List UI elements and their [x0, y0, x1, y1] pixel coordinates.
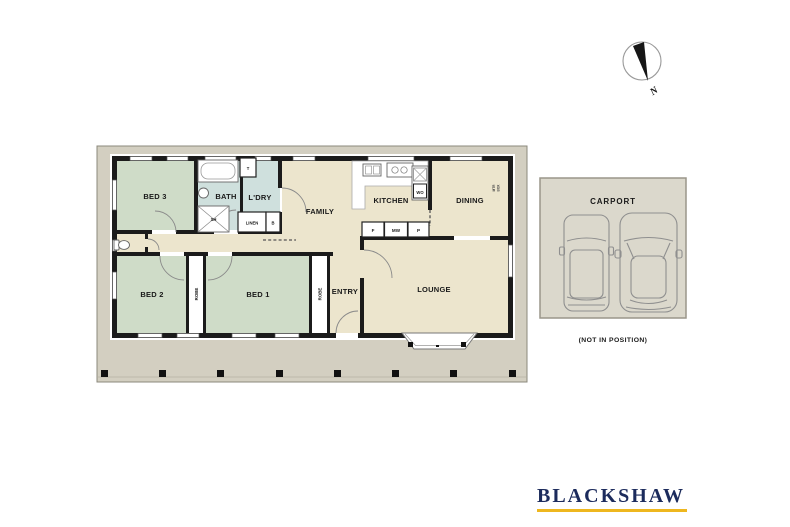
pantry-label: P [417, 228, 420, 233]
bed1-label: BED 1 [246, 290, 269, 299]
meter-box-label-2: BOX [497, 184, 501, 192]
bed3-label: BED 3 [143, 192, 166, 201]
bathtub-icon [198, 160, 238, 182]
wall-oven-label: WO [416, 190, 424, 195]
north-label: N [647, 84, 661, 98]
bed1-robe-label: ROBE [318, 288, 323, 301]
toilet-label: T [247, 166, 250, 171]
basin-icon [199, 188, 209, 198]
entry-label: ENTRY [332, 287, 358, 296]
kitchen-label: KITCHEN [373, 196, 408, 205]
lounge-label: LOUNGE [417, 285, 451, 294]
house-plan: BED 3 BATH L'DRY FAMILY KITCHEN DINING B… [97, 146, 527, 382]
meter-box-label-1: MTR [492, 184, 496, 192]
microwave-label: MW [392, 228, 401, 233]
floorplan-canvas: BED 3 BATH L'DRY FAMILY KITCHEN DINING B… [0, 0, 790, 527]
bed2-label: BED 2 [140, 290, 163, 299]
floorplan-page: BED 3 BATH L'DRY FAMILY KITCHEN DINING B… [0, 0, 790, 527]
brand-logo: BLACKSHAW [537, 485, 687, 512]
carport-note: (NOT IN POSITION) [579, 337, 648, 344]
carport: CARPORT (NOT IN POSITION) [540, 178, 686, 344]
shower-label: SH [211, 217, 217, 222]
sink-icon [363, 164, 381, 176]
brand-name: BLACKSHAW [537, 485, 685, 507]
bath-label: BATH [215, 192, 236, 201]
fridge-label: F [372, 228, 375, 233]
cooktop-icon [387, 163, 413, 177]
carport-label: CARPORT [590, 197, 636, 206]
laundry-label: L'DRY [248, 193, 271, 202]
broom-label: B [271, 221, 274, 226]
compass-north-icon: N [623, 42, 661, 99]
dining-label: DINING [456, 196, 484, 205]
bed2-robe-label: ROBE [194, 288, 199, 301]
toilet-icon [114, 240, 130, 250]
bay-window [402, 333, 477, 349]
family-label: FAMILY [306, 207, 334, 216]
linen-label: LINEN [246, 221, 259, 226]
